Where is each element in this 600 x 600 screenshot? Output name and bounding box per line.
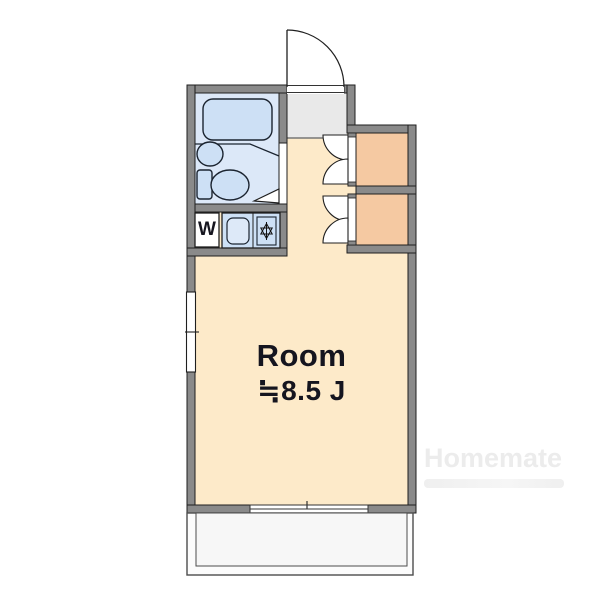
wall-bath-bottom xyxy=(195,204,287,212)
floorplan-drawing xyxy=(0,0,600,600)
wall-kitchen-bottom xyxy=(187,248,287,256)
wall-top-left xyxy=(187,85,287,93)
bathroom-sink xyxy=(197,142,223,166)
balcony-area xyxy=(187,513,413,575)
washer-label: W xyxy=(195,213,219,247)
bathtub xyxy=(203,99,272,140)
watermark: Homemate xyxy=(424,444,579,488)
floorplan-canvas: Room ≒8.5 J W Homemate xyxy=(0,0,600,600)
toilet xyxy=(197,170,249,200)
room-label: Room xyxy=(195,338,408,374)
room-size-label: ≒8.5 J xyxy=(195,374,408,407)
wall-closet-top xyxy=(347,125,416,133)
wall-closet-bottom xyxy=(347,245,416,253)
closet-lower-area xyxy=(356,194,408,245)
kitchen-sink xyxy=(227,218,249,244)
kitchen-counter xyxy=(222,213,280,248)
entrance-door xyxy=(287,30,344,94)
watermark-subline xyxy=(424,479,564,488)
closet-upper-area xyxy=(356,133,408,186)
wall-closet-mid xyxy=(356,186,416,194)
wall-right xyxy=(408,125,416,513)
watermark-brand: Homemate xyxy=(424,444,579,474)
exterior-notch xyxy=(352,78,416,125)
entrance-door-arc xyxy=(287,30,344,87)
entrance-area xyxy=(287,93,347,138)
